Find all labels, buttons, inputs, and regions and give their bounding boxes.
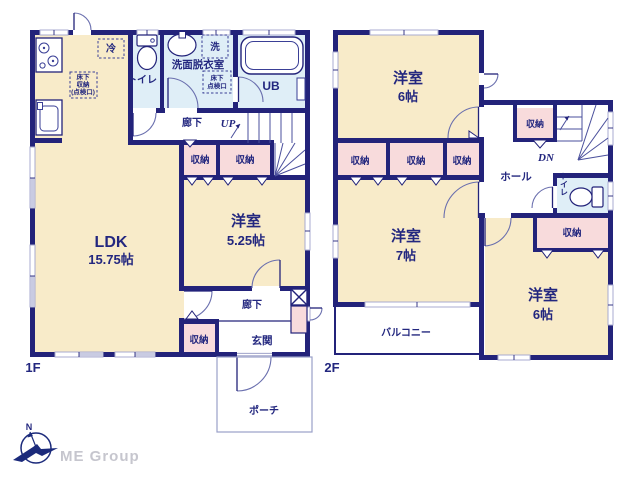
- label-closet-1: 収納: [350, 155, 369, 167]
- pipe-space-box: [291, 289, 307, 305]
- label-toilet-2f: トイレ: [560, 172, 569, 196]
- company-logo-text: ME Group: [60, 448, 140, 465]
- label-balcony: バルコニー: [381, 327, 431, 339]
- label-fridge: 冷: [106, 42, 116, 55]
- label-entrance: 玄関: [252, 334, 273, 347]
- floorplan-drawing: 冷 床下 収納 (点検口) トイレ 洗面脱衣室 洗 床下 点検口 UB 廊下 U…: [0, 0, 640, 480]
- label-room-right: 洋室: [528, 286, 558, 304]
- kitchen-sink-icon: [36, 100, 62, 135]
- label-room-right-size: 6帖: [533, 307, 553, 322]
- label-yukashita-2: 収納: [77, 80, 91, 89]
- label-ldk: LDK: [95, 234, 128, 251]
- label-room-top: 洋室: [393, 69, 423, 87]
- label-yukashita-1: 床下: [77, 72, 91, 81]
- label-hall: ホール: [500, 171, 532, 183]
- floor-1f-plan: 冷 床下 収納 (点検口) トイレ 洗面脱衣室 洗 床下 点検口 UB 廊下 U…: [25, 13, 322, 432]
- label-hallway-bottom: 廊下: [242, 298, 262, 311]
- shoe-cabinet: [291, 306, 307, 333]
- stove-icon: [36, 38, 62, 72]
- label-closet-right: 収納: [562, 227, 581, 239]
- toilet-icon-1f: [137, 35, 157, 70]
- toilet-icon-2f: [570, 187, 603, 207]
- label-youshitsu-1f-size: 5.25帖: [227, 233, 265, 248]
- label-room-mid: 洋室: [391, 227, 421, 245]
- label-toilet-1f: トイレ: [127, 74, 157, 86]
- label-closet-a: 収納: [190, 154, 209, 166]
- label-closet-hall: 収納: [526, 118, 544, 129]
- label-dn: DN: [537, 152, 555, 164]
- label-tenken-1: 床下: [211, 73, 225, 82]
- label-closet-3: 収納: [452, 155, 471, 167]
- label-room-top-size: 6帖: [398, 89, 418, 104]
- logo-area: N ME Group: [13, 422, 140, 465]
- label-washer: 洗: [210, 41, 220, 53]
- compass-icon: N: [13, 422, 58, 463]
- compass-north-label: N: [26, 422, 33, 432]
- label-yukashita-3: (点検口): [71, 87, 95, 96]
- label-tenken-2: 点検口: [207, 81, 227, 90]
- label-floor-1f: 1F: [25, 360, 40, 375]
- label-ub: UB: [262, 79, 280, 93]
- label-closet-b: 収納: [235, 154, 254, 166]
- label-floor-2f: 2F: [324, 360, 339, 375]
- label-room-mid-size: 7帖: [396, 248, 416, 263]
- label-hallway-top: 廊下: [182, 116, 202, 129]
- label-closet-c: 収納: [189, 334, 208, 346]
- porch-outline: [217, 357, 312, 432]
- label-senmen: 洗面脱衣室: [172, 58, 225, 71]
- label-youshitsu-1f: 洋室: [231, 212, 261, 230]
- label-up: UP: [221, 118, 236, 130]
- floorplan-page: 冷 床下 収納 (点検口) トイレ 洗面脱衣室 洗 床下 点検口 UB 廊下 U…: [0, 0, 640, 480]
- floor-2f-plan: 洋室 6帖 収納 収納 収納 収納 DN ホール トイレ 洋室 7帖 収納 洋室…: [324, 30, 613, 375]
- label-porch: ポーチ: [249, 404, 279, 417]
- label-ldk-size: 15.75帖: [88, 252, 134, 267]
- label-closet-2: 収納: [406, 155, 425, 167]
